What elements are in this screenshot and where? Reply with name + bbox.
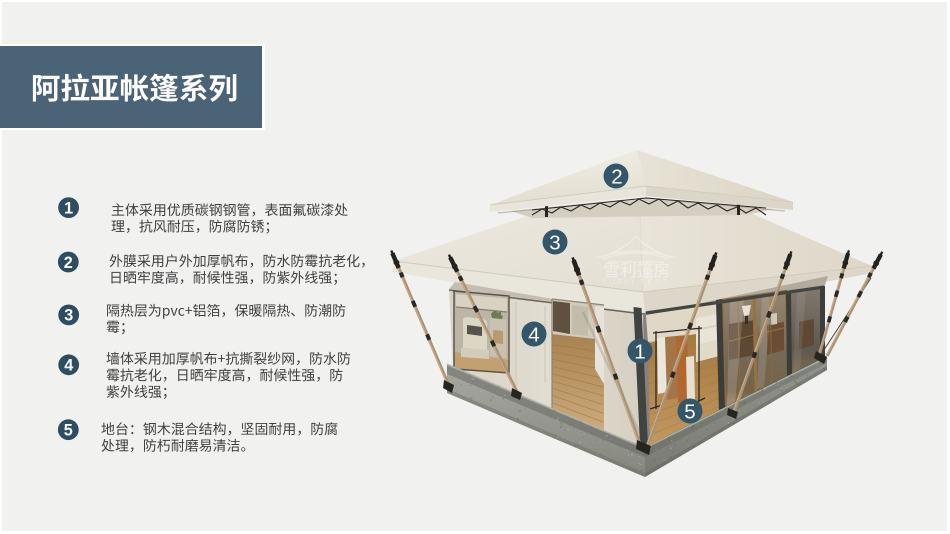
svg-text:5: 5 bbox=[684, 400, 695, 423]
svg-text:4: 4 bbox=[64, 357, 73, 375]
svg-text:4: 4 bbox=[528, 323, 539, 346]
svg-text:YUELI TENT: YUELI TENT bbox=[602, 277, 670, 286]
svg-text:3: 3 bbox=[64, 307, 73, 325]
svg-text:1: 1 bbox=[634, 340, 645, 363]
svg-text:5: 5 bbox=[64, 422, 73, 440]
svg-text:1: 1 bbox=[64, 199, 73, 217]
svg-text:3: 3 bbox=[549, 231, 560, 254]
svg-text:2: 2 bbox=[611, 165, 622, 188]
svg-text:2: 2 bbox=[64, 254, 73, 272]
